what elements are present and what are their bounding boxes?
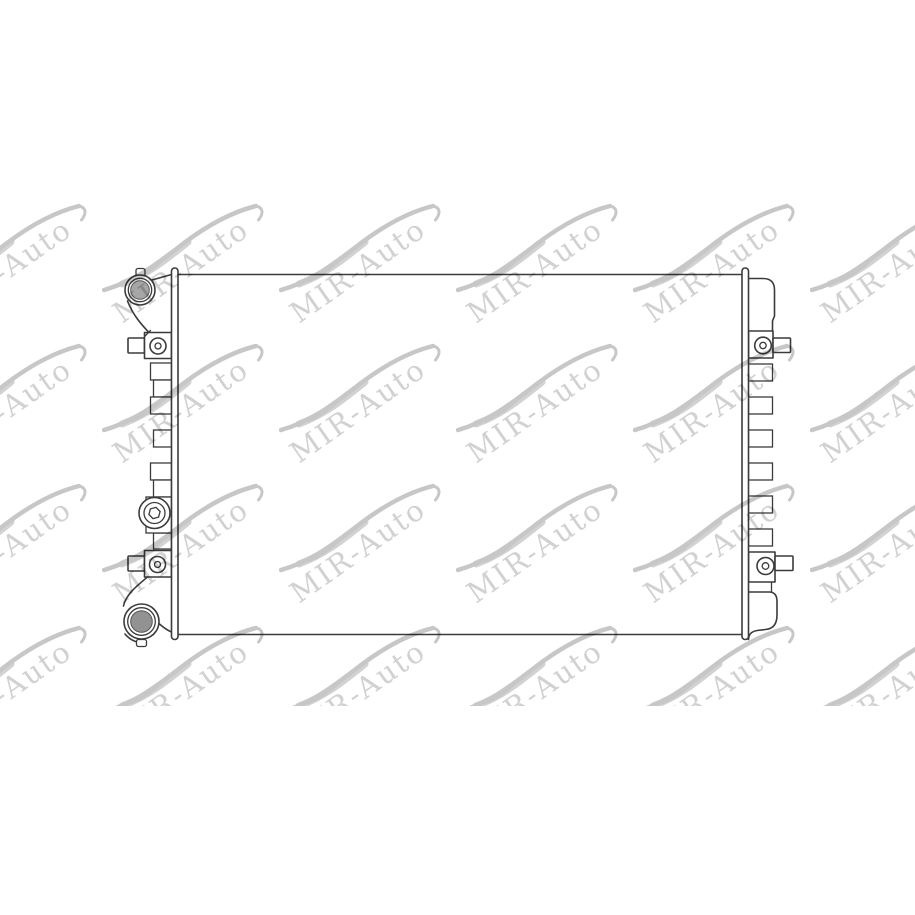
tab bbox=[749, 430, 773, 447]
tank-upper-outline bbox=[749, 279, 775, 332]
right-side-plate bbox=[742, 268, 749, 640]
bracket-plate bbox=[128, 338, 145, 353]
tab bbox=[749, 397, 773, 414]
tank-connect-line bbox=[160, 624, 172, 632]
right-side-tabs bbox=[749, 364, 773, 546]
drain-boss bbox=[139, 497, 172, 533]
tab bbox=[151, 363, 172, 380]
outlet-stub bbox=[137, 640, 147, 647]
left-tank bbox=[124, 269, 172, 647]
outlet-disc bbox=[131, 611, 153, 633]
right-upper-bracket bbox=[749, 331, 791, 358]
tab bbox=[151, 463, 172, 480]
bracket-hole bbox=[762, 563, 769, 570]
bracket-plate bbox=[773, 338, 791, 353]
left-upper-bracket bbox=[128, 331, 172, 359]
radiator-drawing bbox=[0, 0, 915, 915]
product-image: MIR-AutoMIR-AutoMIR-AutoMIR-AutoMIR-Auto… bbox=[0, 0, 915, 915]
left-lower-bracket bbox=[128, 551, 172, 578]
bracket-plate bbox=[128, 556, 145, 571]
bracket-hole bbox=[760, 342, 766, 348]
filler-cap-disc bbox=[131, 281, 150, 300]
tab bbox=[749, 463, 773, 480]
tab bbox=[154, 430, 172, 447]
bracket-plate bbox=[775, 556, 793, 571]
tab bbox=[151, 397, 172, 414]
bracket-hole bbox=[155, 562, 161, 568]
tab bbox=[749, 364, 773, 381]
boss-ring bbox=[144, 503, 165, 524]
right-lower-bracket bbox=[749, 552, 794, 592]
tab bbox=[154, 380, 172, 397]
tab bbox=[749, 496, 773, 513]
tank-top-edge bbox=[152, 275, 172, 281]
tab bbox=[749, 529, 773, 546]
tab bbox=[154, 480, 172, 497]
bracket-hole bbox=[155, 343, 161, 349]
right-tank bbox=[749, 279, 794, 640]
tank-wall-curve bbox=[124, 577, 148, 606]
radiator-core bbox=[178, 275, 742, 635]
tank-lower-outline bbox=[749, 592, 778, 640]
tab bbox=[154, 533, 172, 549]
filler-neck bbox=[125, 269, 155, 306]
outlet-port bbox=[124, 577, 172, 647]
left-side-plate bbox=[172, 268, 179, 640]
